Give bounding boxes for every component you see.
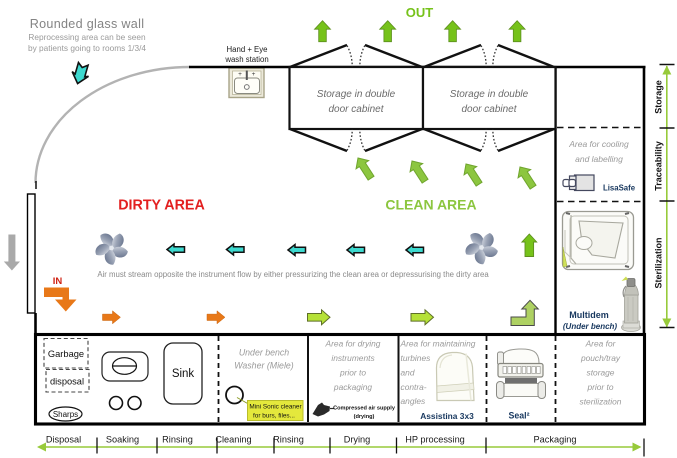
svg-text:Area for: Area for xyxy=(585,339,617,349)
svg-text:Garbage: Garbage xyxy=(48,349,84,359)
svg-text:for burs, files...: for burs, files... xyxy=(253,413,295,420)
svg-text:Multidem: Multidem xyxy=(569,310,609,320)
svg-text:Rinsing: Rinsing xyxy=(162,435,193,445)
svg-text:HP processing: HP processing xyxy=(405,435,465,445)
svg-text:by patients going to rooms 1/3: by patients going to rooms 1/3/4 xyxy=(28,43,146,53)
svg-text:Traceability: Traceability xyxy=(654,141,664,191)
svg-text:Seal²: Seal² xyxy=(508,411,529,421)
svg-text:storage: storage xyxy=(587,368,615,378)
svg-text:Disposal: Disposal xyxy=(46,435,81,445)
svg-text:Area for cooling: Area for cooling xyxy=(568,139,629,149)
svg-text:Rounded glass wall: Rounded glass wall xyxy=(30,17,145,31)
svg-text:CLEAN AREA: CLEAN AREA xyxy=(385,197,476,213)
svg-text:Drying: Drying xyxy=(344,435,371,445)
svg-text:OUT: OUT xyxy=(406,5,434,20)
svg-text:sterilization: sterilization xyxy=(580,397,622,407)
svg-text:instruments: instruments xyxy=(331,353,375,363)
svg-text:Sink: Sink xyxy=(172,368,195,380)
svg-text:packaging: packaging xyxy=(333,382,373,392)
svg-text:pouch/tray: pouch/tray xyxy=(580,353,621,363)
svg-text:prior to: prior to xyxy=(586,382,613,392)
svg-text:+: + xyxy=(238,71,242,78)
svg-text:prior to: prior to xyxy=(339,368,366,378)
svg-text:Soaking: Soaking xyxy=(106,435,139,445)
svg-text:Compressed air supply: Compressed air supply xyxy=(333,406,396,412)
svg-text:angles: angles xyxy=(401,396,426,406)
svg-text:Under bench: Under bench xyxy=(239,348,289,358)
svg-text:LisaSafe: LisaSafe xyxy=(603,184,636,193)
svg-text:Hand + Eye: Hand + Eye xyxy=(227,45,268,54)
svg-text:Area for maintaining: Area for maintaining xyxy=(400,339,476,349)
svg-text:turbines: turbines xyxy=(401,353,432,363)
svg-text:(Under bench): (Under bench) xyxy=(563,322,618,331)
svg-text:(drying): (drying) xyxy=(354,414,375,420)
svg-text:contra-: contra- xyxy=(401,382,427,392)
svg-text:Washer (Miele): Washer (Miele) xyxy=(234,361,294,371)
svg-text:Area for drying: Area for drying xyxy=(325,339,381,349)
svg-text:Reprocessing area can be seen: Reprocessing area can be seen xyxy=(28,32,146,42)
svg-text:door cabinet: door cabinet xyxy=(461,104,517,115)
svg-text:Assistina 3x3: Assistina 3x3 xyxy=(420,411,474,421)
svg-text:and labelling: and labelling xyxy=(575,154,623,164)
svg-text:Sharps: Sharps xyxy=(53,410,78,419)
svg-text:Mini Sonic cleaner: Mini Sonic cleaner xyxy=(249,404,302,411)
svg-text:+: + xyxy=(252,71,256,78)
svg-text:disposal: disposal xyxy=(50,377,84,387)
svg-text:IN: IN xyxy=(53,276,63,287)
svg-text:Sterilization: Sterilization xyxy=(654,237,664,288)
svg-text:Cleaning: Cleaning xyxy=(215,435,251,445)
svg-text:Packaging: Packaging xyxy=(534,435,577,445)
svg-text:Storage: Storage xyxy=(654,80,664,114)
svg-text:Air must stream opposite the i: Air must stream opposite the instrument … xyxy=(97,270,489,279)
svg-text:wash station: wash station xyxy=(224,55,268,64)
svg-text:Rinsing: Rinsing xyxy=(273,435,304,445)
svg-text:and: and xyxy=(401,368,415,378)
svg-text:door cabinet: door cabinet xyxy=(328,104,384,115)
svg-text:DIRTY AREA: DIRTY AREA xyxy=(118,198,205,214)
svg-text:Storage in double: Storage in double xyxy=(450,89,529,100)
svg-text:Storage in double: Storage in double xyxy=(317,89,396,100)
